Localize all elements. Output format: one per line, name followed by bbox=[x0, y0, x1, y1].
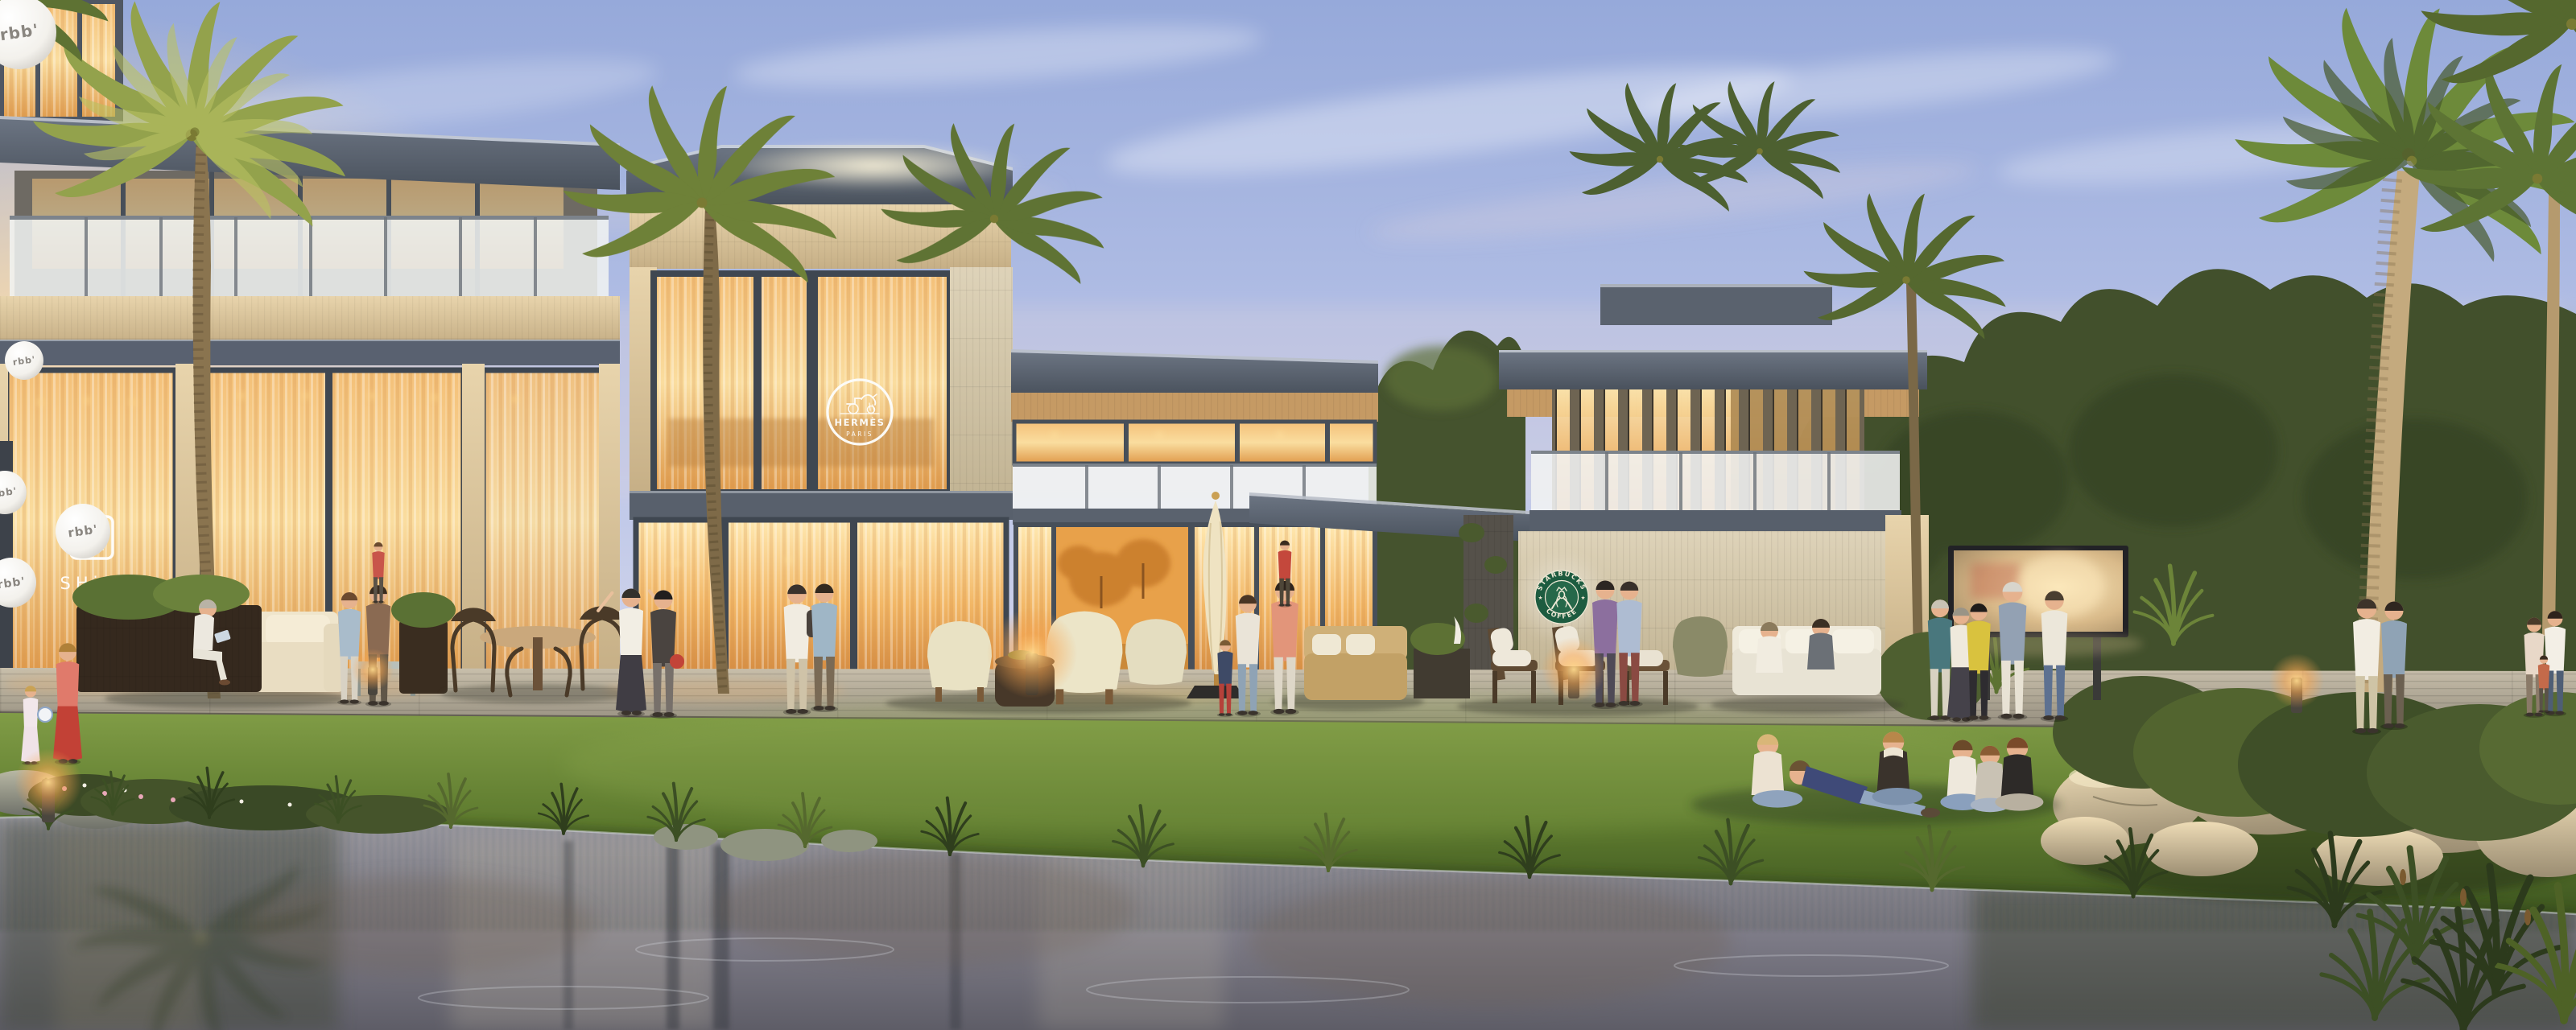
scene-canvas: 四 SHiKI HERMÈS PARIS bbox=[0, 0, 2576, 1030]
center-upper-floor bbox=[630, 267, 1013, 494]
bollard-light bbox=[1542, 637, 1606, 702]
patio-torch bbox=[987, 608, 1077, 698]
starbucks-star-left: ★ bbox=[1538, 595, 1543, 601]
right-roof bbox=[1499, 352, 1927, 389]
hermes-name: HERMÈS bbox=[835, 416, 885, 428]
left-terrace-balustrade bbox=[10, 216, 609, 298]
rbb-balloon: rbb' bbox=[5, 341, 43, 380]
white-sofa bbox=[1711, 626, 1904, 714]
rbb-balloon: rbb' bbox=[56, 504, 110, 558]
starbucks-star-right: ★ bbox=[1581, 595, 1586, 601]
clubhouse-rendering: 四 SHiKI HERMÈS PARIS bbox=[0, 0, 2576, 1030]
starbucks-logo: STARBUCKS COFFEE ★ ★ bbox=[1535, 570, 1588, 624]
toy-ball bbox=[38, 707, 52, 722]
hermes-city: PARIS bbox=[846, 431, 873, 438]
